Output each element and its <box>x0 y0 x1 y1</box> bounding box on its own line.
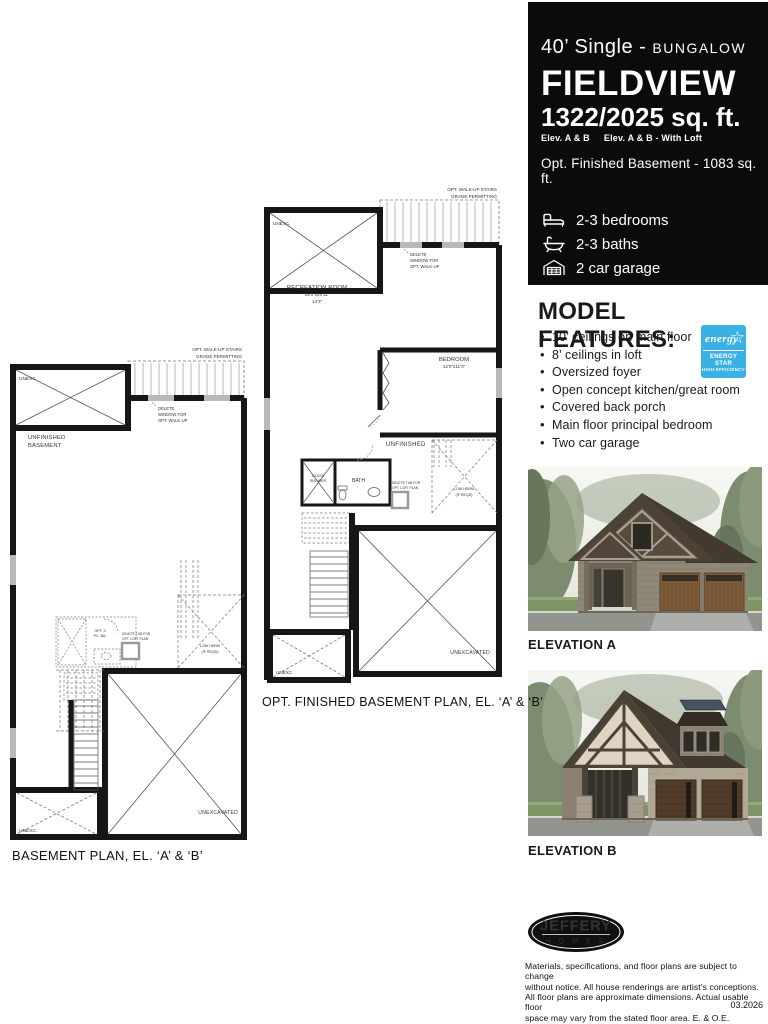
elev-note-a: Elev. A & B <box>541 133 590 143</box>
stat-bedrooms-label: 2-3 bedrooms <box>576 212 669 229</box>
plan-note: (IF REQD) <box>202 650 219 654</box>
plan-note: SHOWER <box>310 479 327 483</box>
plan-note: OPT. WALK-UP STAIRS <box>447 187 497 192</box>
elevation-b-image <box>528 670 762 836</box>
plan-note: GRADE PERMITTING <box>196 354 242 359</box>
bed-icon <box>541 211 567 229</box>
feature-item: Main floor principal bedroom <box>552 418 768 432</box>
elevation-b-label: ELEVATION B <box>528 843 617 858</box>
room-label: UNEXCAVATED <box>198 810 238 816</box>
room-label: UNEXC. <box>273 221 290 226</box>
feature-item: Open concept kitchen/great room <box>552 383 768 397</box>
room-dimension: 25’0”x24’11” <box>305 292 330 297</box>
room-label: UNFINISHED <box>28 435 65 441</box>
feature-item: Two car garage <box>552 436 768 450</box>
plan-note: DELETE <box>410 252 426 257</box>
home-type-main: 40’ Single <box>541 36 633 58</box>
plan-note: PC. BA. <box>94 634 107 638</box>
plan-note: OPT. WALK-UP STAIRS <box>192 347 242 352</box>
opt-basement-plan-caption: OPT. FINISHED BASEMENT PLAN, EL. ‘A’ & ‘… <box>262 695 543 709</box>
plan-note: WINDOW FOR <box>410 258 438 263</box>
room-label: BATH <box>352 478 365 484</box>
elevation-a-image <box>528 467 762 631</box>
model-header: 40’ Single - BUNGALOW FIELDVIEW 1322/202… <box>528 2 768 285</box>
room-dimension: 12’0”x11’0” <box>443 364 466 369</box>
plan-note: DELETE <box>158 406 174 411</box>
square-footage: 1322/2025 sq. ft. <box>541 104 768 131</box>
plan-note: OPT. LOFT PLAN <box>392 486 419 490</box>
home-type-sep: - <box>633 36 652 58</box>
plan-note: LOW HDRM <box>200 644 220 648</box>
disclaimer-text: Materials, specifications, and floor pla… <box>525 961 763 1023</box>
model-name: FIELDVIEW <box>541 66 768 101</box>
bath-icon <box>541 235 567 253</box>
energy-star-badge: energy ☆ ENERGY STAR HIGH EFFICIENCY <box>701 325 746 378</box>
garage-icon <box>541 259 567 277</box>
energy-star-icon: ☆ <box>730 328 745 348</box>
room-label: UNEXC. <box>276 670 293 675</box>
room-label: UNEXC. <box>19 376 37 382</box>
plan-note: OPT. WALK-UP <box>410 264 440 269</box>
opt-basement-plan-drawing: OPT. WALK-UP STAIRS GRADE PERMITTING <box>262 183 505 688</box>
energy-efficiency-label: HIGH EFFICIENCY <box>701 367 746 372</box>
plan-note: GRADE PERMITTING <box>451 194 497 199</box>
stat-baths: 2-3 baths <box>541 235 768 253</box>
stat-garage: 2 car garage <box>541 259 768 277</box>
home-type-style: BUNGALOW <box>652 40 746 56</box>
home-type: 40’ Single - BUNGALOW <box>541 36 768 59</box>
plan-note: (IF REQD) <box>456 493 473 497</box>
plan-note: OPT. 3 <box>95 629 106 633</box>
stats-list: 2-3 bedrooms 2-3 baths <box>541 211 768 277</box>
plan-note: DELETE TUB FOR <box>122 632 151 636</box>
room-label: UNEXCAVATED <box>450 650 490 656</box>
plan-note: GLASS <box>312 474 325 478</box>
energy-star-label: ENERGY STAR <box>701 353 746 367</box>
logo-name: JEFFERY <box>540 919 612 935</box>
date-stamp: 03.2026 <box>525 1000 763 1010</box>
plan-note: OPT. WALK-UP <box>158 418 188 423</box>
room-label: BASEMENT <box>28 443 62 449</box>
logo-sub: H O M E S <box>546 939 606 946</box>
elev-note-b: Elev. A & B - With Loft <box>604 133 702 143</box>
brochure-page: 40’ Single - BUNGALOW FIELDVIEW 1322/202… <box>0 0 768 1024</box>
room-label: BEDROOM <box>439 357 469 363</box>
opt-basement-note: Opt. Finished Basement - 1083 sq. ft. <box>541 156 768 186</box>
plan-note: LOW HDRM <box>454 487 474 491</box>
room-label: RECREATION ROOM <box>287 285 347 291</box>
stat-bedrooms: 2-3 bedrooms <box>541 211 768 229</box>
jeffery-homes-logo: JEFFERY H O M E S <box>527 911 625 953</box>
plan-note: DELETE TUB FOR <box>392 481 421 485</box>
feature-item: Covered back porch <box>552 400 768 414</box>
energy-divider <box>703 350 744 351</box>
basement-plan-drawing: OPT. WALK-UP STAIRS GRADE PERMITTING <box>8 343 250 848</box>
basement-plan-caption: BASEMENT PLAN, EL. ‘A’ & ‘B’ <box>12 848 203 863</box>
elevation-a-label: ELEVATION A <box>528 637 616 652</box>
room-label: UNFINISHED <box>386 442 426 448</box>
plan-note: OPT. LOFT PLAN <box>122 637 149 641</box>
room-label: UNEXC. <box>19 828 37 834</box>
room-dimension: 14’3” <box>312 299 323 304</box>
plan-note: WINDOW FOR <box>158 412 186 417</box>
stat-garage-label: 2 car garage <box>576 260 660 277</box>
elevation-notes: Elev. A & BElev. A & B - With Loft <box>541 133 768 143</box>
stat-baths-label: 2-3 baths <box>576 236 639 253</box>
